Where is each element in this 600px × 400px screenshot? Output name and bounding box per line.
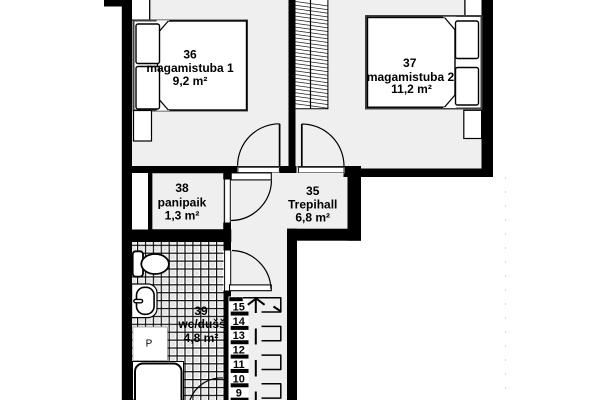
svg-text:10: 10 <box>233 373 245 385</box>
svg-text:1,3 m²: 1,3 m² <box>165 209 200 223</box>
svg-text:P: P <box>146 339 153 350</box>
svg-text:13: 13 <box>233 330 245 342</box>
svg-text:9: 9 <box>236 388 242 400</box>
svg-text:4,8 m²: 4,8 m² <box>184 331 219 345</box>
svg-text:9,2 m²: 9,2 m² <box>173 74 208 88</box>
svg-text:14: 14 <box>233 316 246 328</box>
svg-text:39: 39 <box>194 304 208 318</box>
svg-text:37: 37 <box>403 56 417 70</box>
svg-text:wc/dušš: wc/dušš <box>177 317 226 331</box>
svg-text:12: 12 <box>233 345 245 357</box>
svg-text:Trepihall: Trepihall <box>288 197 337 211</box>
svg-text:35: 35 <box>306 184 320 198</box>
svg-text:36: 36 <box>183 47 197 61</box>
svg-text:11: 11 <box>233 359 245 371</box>
svg-text:38: 38 <box>175 181 189 195</box>
svg-text:6,8 m²: 6,8 m² <box>295 211 330 225</box>
svg-text:11,2 m²: 11,2 m² <box>391 82 432 96</box>
svg-text:panipaik: panipaik <box>158 196 207 210</box>
svg-text:15: 15 <box>233 302 245 314</box>
svg-text:magamistuba 1: magamistuba 1 <box>146 61 234 75</box>
